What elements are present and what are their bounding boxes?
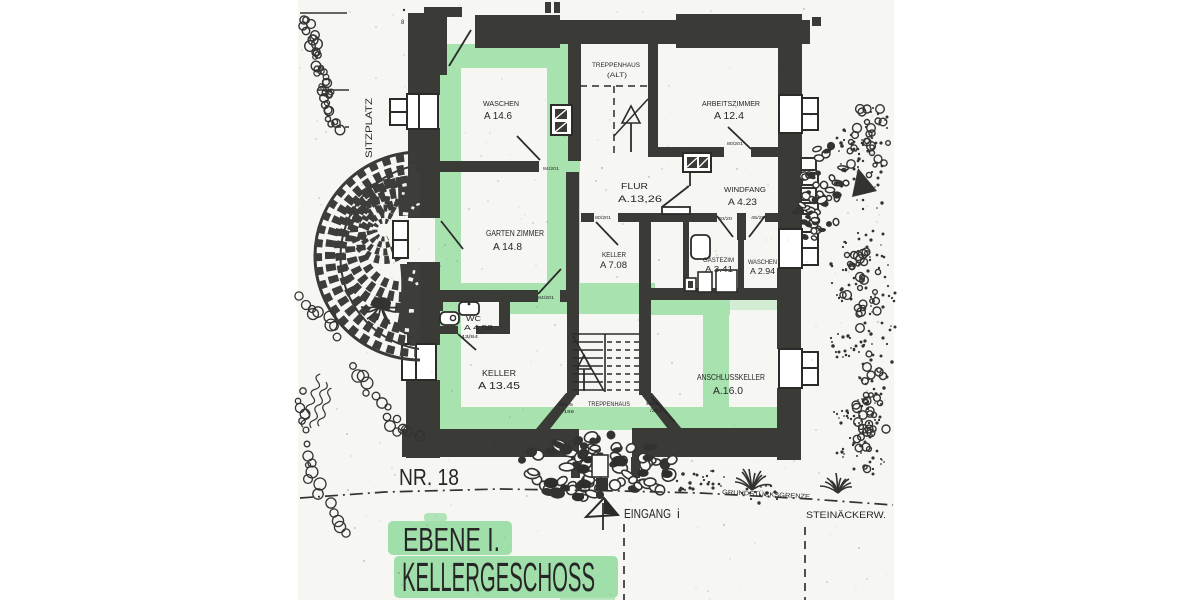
svg-text:A 4.58: A 4.58 [464, 325, 493, 332]
svg-text:A 7.08: A 7.08 [600, 260, 627, 270]
svg-text:A 2.94: A 2.94 [750, 267, 776, 276]
svg-text:WASCHEN: WASCHEN [748, 260, 777, 266]
svg-text:80/201: 80/201 [727, 141, 743, 147]
svg-text:TREPPENHAUS: TREPPENHAUS [588, 401, 631, 408]
svg-text:SITZPLATZ: SITZPLATZ [364, 98, 375, 158]
svg-text:A 14.8: A 14.8 [493, 242, 522, 253]
svg-text:84/201: 84/201 [538, 295, 554, 301]
svg-text:KELLER: KELLER [482, 369, 516, 378]
svg-text:43/84: 43/84 [461, 334, 478, 340]
svg-text:A.13,26: A.13,26 [618, 194, 662, 205]
svg-text:i: i [677, 507, 680, 521]
svg-text:40/20: 40/20 [718, 216, 732, 222]
svg-text:ANSCHLUSSKELLER: ANSCHLUSSKELLER [697, 373, 765, 382]
svg-text:84/201: 84/201 [543, 166, 559, 172]
svg-text:/201: /201 [650, 408, 662, 414]
svg-text:KELLER: KELLER [602, 252, 626, 259]
svg-text:WASCHEN: WASCHEN [483, 101, 519, 108]
svg-text:EINGANG: EINGANG [624, 507, 671, 521]
svg-text:NR. 18: NR. 18 [399, 464, 459, 490]
svg-text:/186: /186 [562, 409, 574, 415]
svg-text:GARTEN ZIMMER: GARTEN ZIMMER [486, 229, 544, 238]
svg-text:A.16.0: A.16.0 [713, 386, 743, 397]
svg-text:(ALT): (ALT) [607, 72, 627, 79]
svg-text:EBENE I.: EBENE I. [403, 521, 500, 558]
svg-text:80/201: 80/201 [595, 215, 611, 221]
svg-text:A 3.41: A 3.41 [705, 265, 734, 274]
svg-text:88,5: 88,5 [559, 402, 573, 408]
svg-text:TREPPENHAUS: TREPPENHAUS [592, 62, 641, 69]
svg-text:86/: 86/ [646, 401, 659, 407]
svg-text:FLUR: FLUR [621, 182, 648, 191]
svg-text:A 13.45: A 13.45 [478, 381, 521, 392]
svg-text:WINDFANG: WINDFANG [724, 185, 766, 194]
svg-text:STEINÄCKERW.: STEINÄCKERW. [806, 510, 886, 521]
svg-text:KELLERGESCHOSS: KELLERGESCHOSS [402, 554, 595, 600]
svg-text:WC: WC [466, 314, 482, 323]
svg-text:ARBEITSZIMMER: ARBEITSZIMMER [702, 99, 761, 108]
svg-text:A 4.23: A 4.23 [728, 197, 757, 208]
svg-text:A 14.6: A 14.6 [484, 111, 512, 122]
svg-text:GÄSTEZIM: GÄSTEZIM [703, 257, 734, 264]
svg-text:45/20: 45/20 [751, 215, 765, 221]
svg-text:A 12.4: A 12.4 [714, 111, 744, 122]
